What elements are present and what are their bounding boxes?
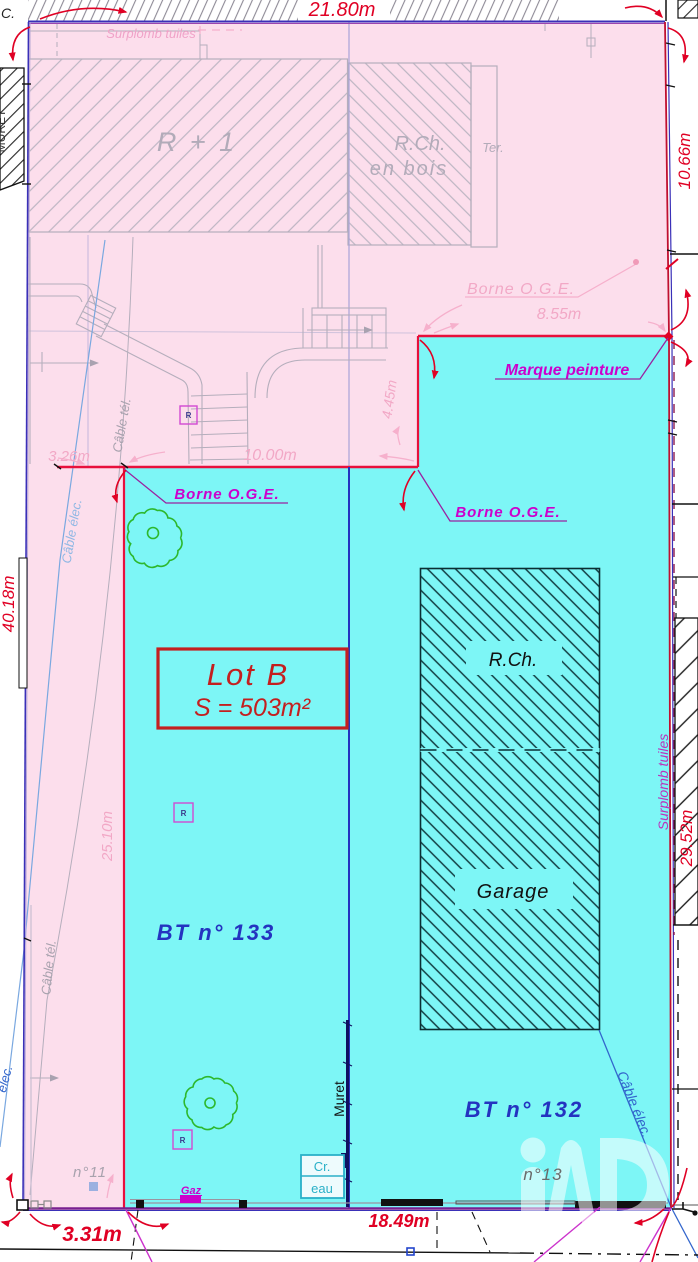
svg-text:R: R <box>181 809 187 818</box>
svg-text:8.55m: 8.55m <box>537 306 581 323</box>
svg-text:eau: eau <box>311 1181 333 1196</box>
svg-text:10.66m: 10.66m <box>675 133 694 190</box>
svg-text:R: R <box>180 1136 186 1145</box>
svg-text:3.31m: 3.31m <box>62 1223 122 1246</box>
svg-text:18.49m: 18.49m <box>368 1211 429 1231</box>
svg-text:Surplomb tuiles: Surplomb tuiles <box>655 734 671 831</box>
svg-text:BT n° 132: BT n° 132 <box>465 1097 584 1122</box>
svg-text:Borne O.G.E.: Borne O.G.E. <box>174 486 279 503</box>
svg-text:Cr.: Cr. <box>314 1159 331 1174</box>
svg-text:R.Ch.: R.Ch. <box>489 650 538 671</box>
svg-text:R: R <box>186 411 192 420</box>
svg-text:Marque peinture: Marque peinture <box>505 362 630 379</box>
svg-text:en bois: en bois <box>370 158 449 180</box>
svg-text:40.18m: 40.18m <box>0 576 18 633</box>
svg-text:Surplomb tuiles: Surplomb tuiles <box>106 26 196 41</box>
svg-text:Ter.: Ter. <box>482 140 503 155</box>
svg-text:R.Ch.: R.Ch. <box>394 133 445 155</box>
svg-text:R + 1: R + 1 <box>157 127 237 157</box>
svg-text:Garage: Garage <box>477 881 550 903</box>
svg-text:MURET: MURET <box>0 109 8 152</box>
svg-text:Muret: Muret <box>331 1081 347 1117</box>
svg-text:Borne O.G.E.: Borne O.G.E. <box>467 281 575 298</box>
svg-text:C.: C. <box>1 5 15 21</box>
svg-text:n°13: n°13 <box>523 1165 562 1184</box>
svg-text:BT n° 133: BT n° 133 <box>157 920 276 945</box>
svg-text:29.52m: 29.52m <box>677 810 696 868</box>
svg-text:n°11: n°11 <box>73 1164 107 1181</box>
svg-text:25.10m: 25.10m <box>99 811 116 862</box>
svg-text:21.80m: 21.80m <box>308 0 376 21</box>
svg-text:Lot B: Lot B <box>207 657 289 692</box>
svg-text:3.26m: 3.26m <box>48 448 90 465</box>
svg-text:Borne O.G.E.: Borne O.G.E. <box>455 504 560 521</box>
svg-text:S = 503m²: S = 503m² <box>194 694 312 722</box>
svg-text:10.00m: 10.00m <box>243 447 296 464</box>
